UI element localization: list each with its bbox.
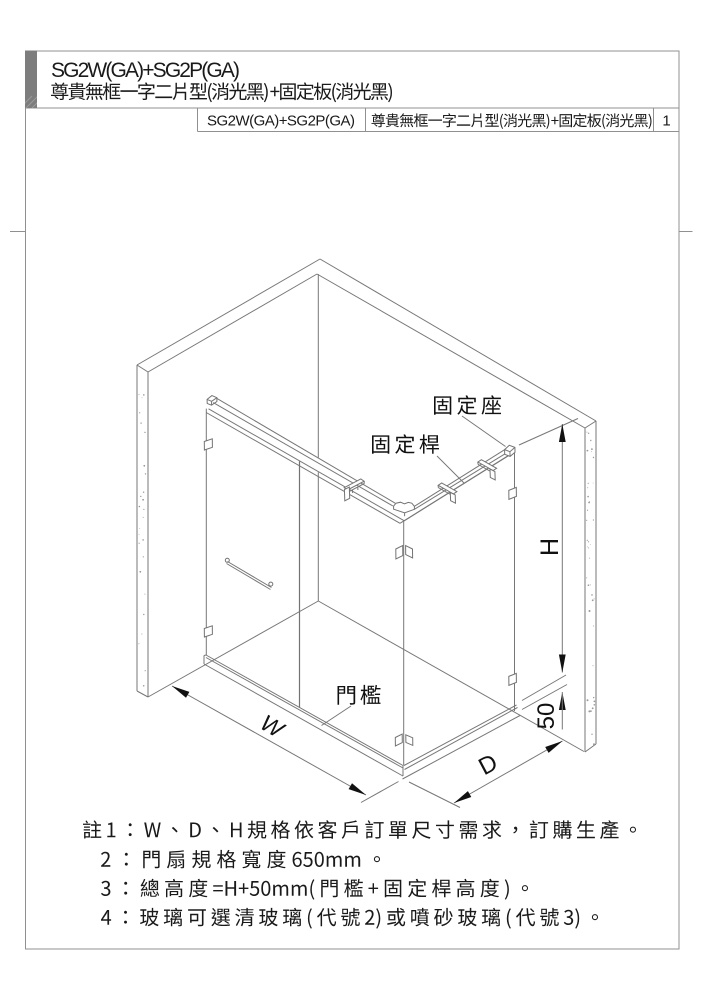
svg-text:H: H	[536, 538, 564, 556]
svg-text:SG2W(GA)+SG2P(GA): SG2W(GA)+SG2P(GA)	[207, 113, 355, 130]
svg-text:1: 1	[662, 113, 670, 130]
svg-text:SG2W(GA)+SG2P(GA): SG2W(GA)+SG2P(GA)	[51, 59, 240, 82]
svg-text:50: 50	[533, 703, 560, 730]
